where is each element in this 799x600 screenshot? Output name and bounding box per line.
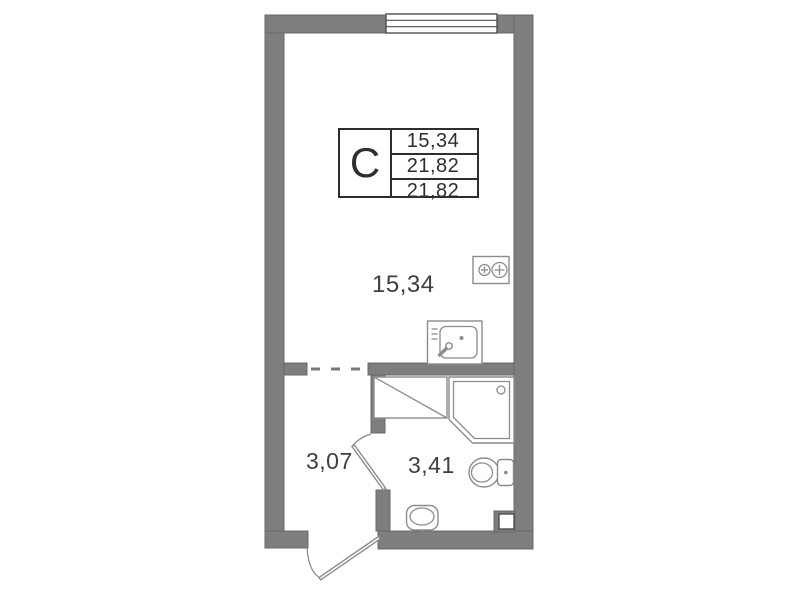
stove-two-burners-icon bbox=[473, 257, 509, 284]
unit-legend-values: 15,34 21,82 21,82 bbox=[392, 130, 477, 196]
hallway-wall-stub bbox=[284, 363, 307, 375]
entrance-door-swing-arc bbox=[307, 548, 319, 578]
bathroom-west-wall-lower bbox=[376, 490, 390, 531]
shower-cabin-icon bbox=[449, 377, 514, 443]
floor-plan-drawing bbox=[0, 0, 799, 600]
toilet-bowl bbox=[469, 458, 499, 487]
left-wall bbox=[265, 15, 284, 548]
unit-type-label: С bbox=[340, 130, 392, 196]
bathroom-door-leaf bbox=[352, 445, 386, 490]
hallway-area-label: 3,07 bbox=[306, 448, 353, 475]
washbasin-icon bbox=[407, 506, 439, 533]
faucet-head bbox=[446, 343, 452, 349]
bathroom-door bbox=[352, 434, 386, 490]
bathroom-area-label: 3,41 bbox=[408, 452, 455, 479]
toilet-icon bbox=[469, 458, 514, 487]
washing-machine-area bbox=[374, 377, 447, 418]
legend-total-area: 21,82 bbox=[392, 155, 477, 180]
window-icon bbox=[386, 14, 497, 33]
legend-reduced-area: 21,82 bbox=[392, 180, 477, 203]
bottom-wall-left bbox=[265, 531, 308, 548]
living-room-area-label: 15,34 bbox=[372, 271, 435, 299]
toilet-flush-button bbox=[504, 471, 508, 475]
entrance-door-leaf bbox=[319, 537, 380, 580]
entrance-door bbox=[307, 537, 380, 580]
floor-plan-canvas: С 15,34 21,82 21,82 15,34 3,07 3,41 bbox=[0, 0, 799, 600]
right-wall bbox=[514, 15, 533, 549]
sink-drain bbox=[460, 336, 464, 340]
unit-legend-table: С 15,34 21,82 21,82 bbox=[338, 128, 479, 198]
window-frame bbox=[386, 14, 497, 33]
vent-shaft-icon bbox=[499, 514, 514, 529]
bottom-wall-right bbox=[378, 531, 533, 549]
bathroom-north-wall bbox=[368, 363, 514, 375]
legend-living-area: 15,34 bbox=[392, 130, 477, 155]
kitchen-sink-icon bbox=[428, 321, 483, 364]
top-wall-left bbox=[265, 15, 386, 33]
